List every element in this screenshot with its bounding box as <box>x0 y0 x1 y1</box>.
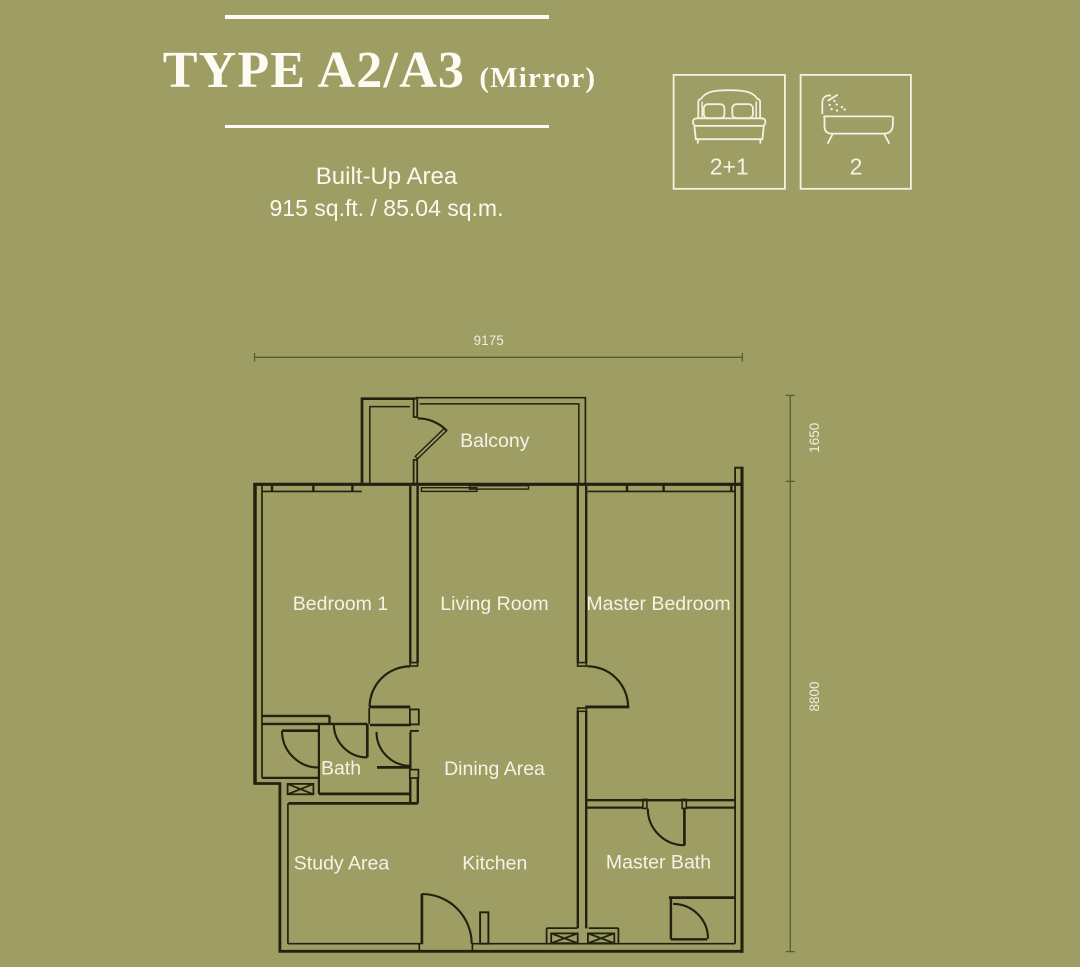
svg-text:Bath: Bath <box>321 758 361 780</box>
svg-text:Study Area: Study Area <box>294 853 390 875</box>
svg-text:Master Bedroom: Master Bedroom <box>586 593 730 615</box>
svg-text:Kitchen: Kitchen <box>462 853 527 875</box>
svg-text:1650: 1650 <box>807 423 822 453</box>
svg-text:Dining Area: Dining Area <box>444 758 545 780</box>
svg-text:Bedroom 1: Bedroom 1 <box>293 593 388 615</box>
svg-text:Living Room: Living Room <box>440 593 548 615</box>
svg-text:9175: 9175 <box>474 333 504 348</box>
svg-text:8800: 8800 <box>807 681 822 711</box>
svg-text:Master Bath: Master Bath <box>606 852 711 874</box>
svg-text:2: 2 <box>850 154 863 180</box>
svg-text:Balcony: Balcony <box>460 430 530 452</box>
svg-text:2+1: 2+1 <box>710 154 749 180</box>
